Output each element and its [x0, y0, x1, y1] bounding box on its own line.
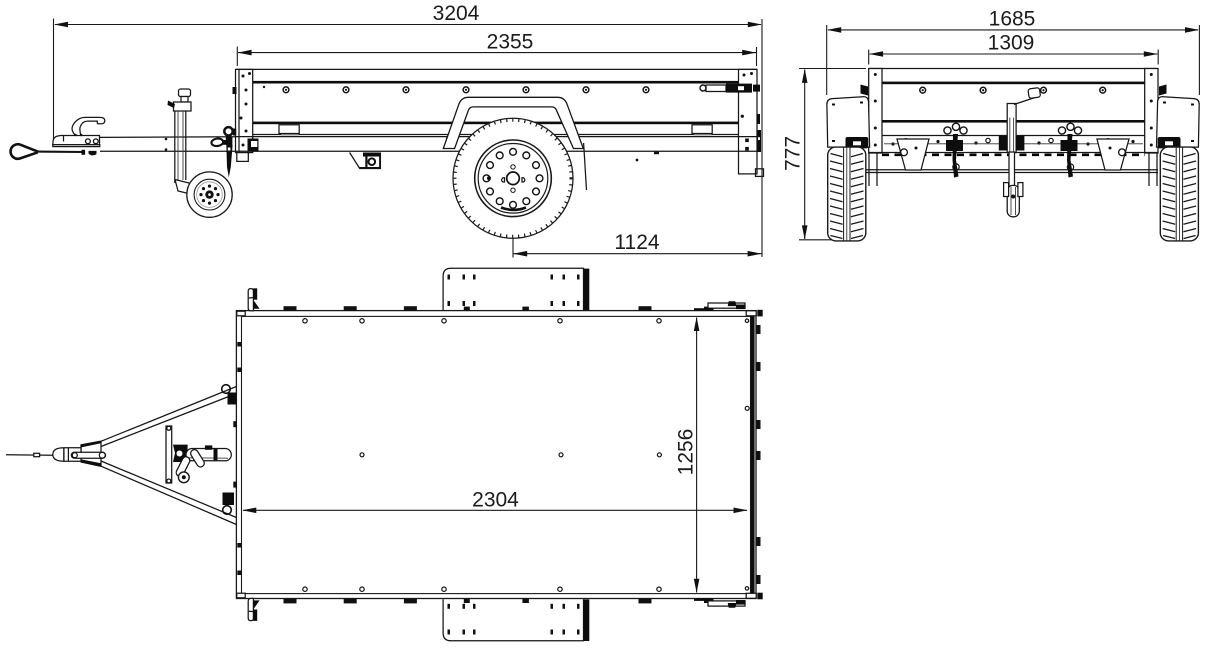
svg-text:1124: 1124 [614, 231, 659, 254]
svg-text:2355: 2355 [487, 30, 534, 53]
svg-text:3204: 3204 [433, 2, 480, 25]
svg-text:777: 777 [782, 136, 805, 171]
svg-text:1309: 1309 [988, 32, 1035, 55]
svg-text:1685: 1685 [989, 8, 1036, 31]
svg-text:1256: 1256 [675, 429, 698, 476]
svg-text:2304: 2304 [472, 488, 519, 511]
